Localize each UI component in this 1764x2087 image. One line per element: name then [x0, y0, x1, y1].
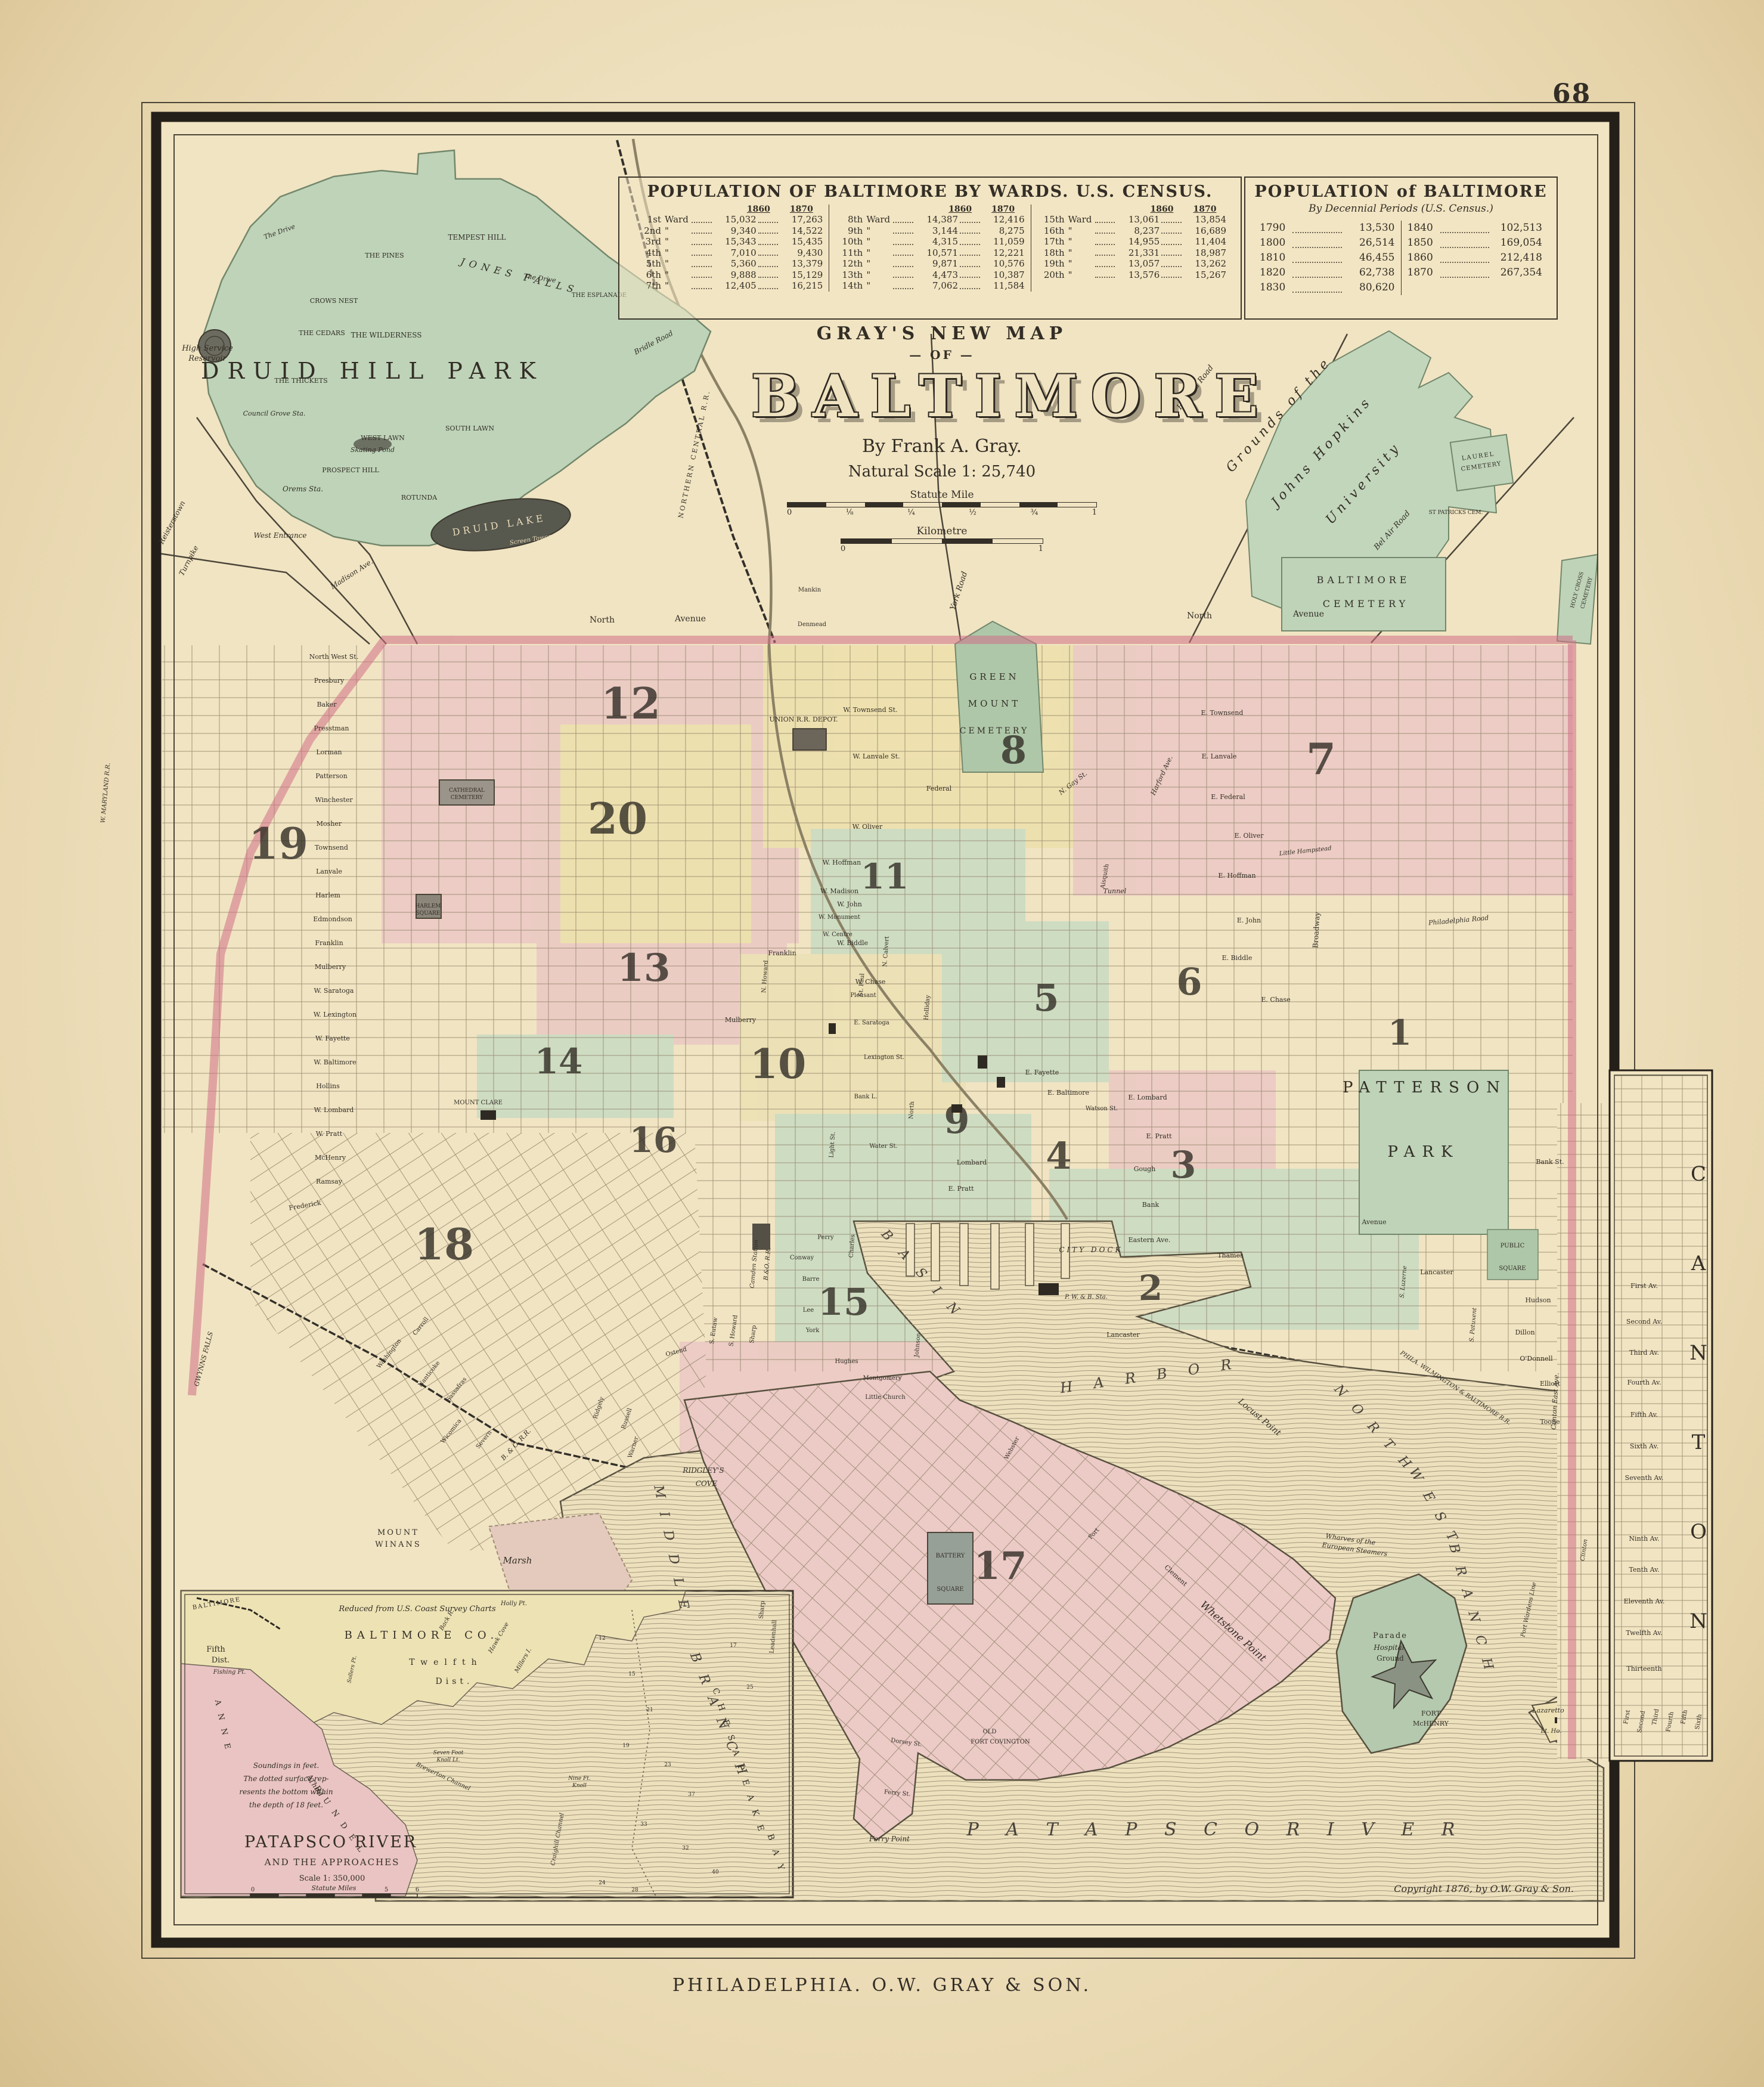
map-label: Bank St. [1536, 1158, 1564, 1166]
inset-tick: 5 [385, 1887, 388, 1893]
ward-8-number: 8 [1000, 728, 1027, 773]
map-label: WINANS [375, 1540, 421, 1549]
decennial-population-table: POPULATION of BALTIMORE By Decennial Per… [1244, 177, 1558, 320]
map-label: E. Fayette [1025, 1069, 1059, 1076]
ward-table-row: 1stWard15,03217,263 [634, 214, 823, 225]
map-label: High Service [181, 344, 233, 353]
map-label: MOUNT [377, 1528, 419, 1537]
decennial-row: 1860212,418 [1408, 250, 1543, 265]
ward-table-title: POPULATION OF BALTIMORE BY WARDS. U.S. C… [628, 182, 1232, 201]
publisher-imprint: PHILADELPHIA. O.W. GRAY & SON. [0, 1975, 1764, 1996]
map-label: Denmead [798, 621, 827, 628]
inset-sounding: 40 [712, 1869, 719, 1875]
ward-1-number: 1 [1388, 1012, 1412, 1053]
map-label: E. Biddle [1222, 954, 1253, 962]
map-label: Winchester [315, 796, 353, 804]
map-label: Marsh [503, 1555, 532, 1566]
map-label: BALTIMORE [1317, 574, 1410, 586]
map-label: DRUID HILL PARK [201, 358, 544, 384]
ward-3-number: 3 [1170, 1143, 1196, 1187]
ward-16-number: 16 [630, 1120, 678, 1160]
mile-tick: ⅛ [846, 508, 854, 517]
map-label: W. Pratt [316, 1130, 343, 1138]
inset-label: Dist. [436, 1677, 473, 1686]
map-label: Little Church [865, 1394, 906, 1401]
map-label: OLD [983, 1729, 997, 1735]
map-label: MOUNT CLARE [454, 1100, 503, 1106]
ward-20-number: 20 [588, 793, 647, 844]
map-label: Ninth Av. [1629, 1535, 1659, 1543]
map-label: Thirteenth [1626, 1665, 1661, 1673]
map-label: E. Hoffman [1218, 872, 1255, 880]
map-label: Perry [817, 1234, 834, 1241]
map-label: Eleventh Av. [1624, 1597, 1665, 1605]
map-label: CITY DOCK [1059, 1246, 1123, 1254]
map-label: COVE [696, 1479, 717, 1488]
map-label: W. MARYLAND R.R. [100, 763, 112, 823]
page-number: 68 [1552, 79, 1591, 109]
inset-sounding: 23 [664, 1762, 671, 1768]
map-label: WEST LAWN [361, 434, 405, 442]
map-label: McHENRY [1413, 1720, 1449, 1727]
map-label: Ramsay [316, 1178, 343, 1185]
inset-sounding: 25 [746, 1685, 754, 1690]
map-label: Council Grove Sta. [243, 410, 306, 417]
map-label: Lorman [316, 748, 342, 756]
ward-table-groups: 186018701stWard15,03217,2632nd"9,34014,5… [628, 205, 1232, 292]
map-label: McHenry [315, 1154, 346, 1162]
map-label: Mulberry [725, 1016, 757, 1024]
map-label: E. Lombard [1128, 1094, 1167, 1101]
map-label: York [805, 1327, 820, 1334]
ward-10-number: 10 [750, 1041, 807, 1088]
decennial-row: 180026,514 [1260, 236, 1395, 250]
map-label: N [1689, 1341, 1707, 1365]
map-label: E. Townsend [1201, 709, 1244, 717]
inset-sounding: 37 [688, 1792, 695, 1798]
map-label: GREEN [969, 671, 1019, 682]
map-title-main: BALTIMORE [751, 368, 1133, 425]
map-title-kicker: GRAY'S NEW MAP [751, 323, 1133, 344]
map-label: Mankin [798, 587, 821, 593]
ward-table-row: 2nd"9,34014,522 [634, 225, 823, 237]
inset-title: AND THE APPROACHES [264, 1857, 400, 1868]
map-label: W. Townsend St. [843, 706, 897, 714]
map-label: MOUNT [968, 698, 1021, 709]
map-label: Avenue [1292, 609, 1324, 619]
ward-table-row: 3rd"15,34315,435 [634, 236, 823, 247]
map-label: P. W. & B. Sta. [1064, 1294, 1108, 1300]
map-label: ROTUNDA [401, 494, 438, 501]
map-label: Water St. [869, 1143, 897, 1150]
map-label: Lazaretto [1532, 1707, 1564, 1714]
inset-title: Statute Miles [312, 1884, 356, 1892]
ward-11-number: 11 [861, 856, 909, 897]
inset-label: Knoll Lt. [436, 1757, 460, 1763]
map-label: W. Lexington [314, 1011, 356, 1018]
ward-table-row: 11th"10,57112,221 [835, 247, 1024, 259]
map-label: North [590, 615, 615, 625]
ward-5-number: 5 [1033, 976, 1059, 1020]
kilometre-label: Kilometre [841, 525, 1043, 537]
ward-14-number: 14 [535, 1041, 583, 1082]
ward-table-row: 13th"4,47310,387 [835, 270, 1024, 281]
inset-note: Soundings in feet. [253, 1761, 319, 1770]
map-label: W. Madison [820, 887, 858, 895]
map-label: Hollins [316, 1082, 340, 1090]
map-label: E. Lanvale [1202, 753, 1237, 760]
map-label: FORT COVINGTON [971, 1739, 1030, 1745]
map-label: Presbury [314, 677, 345, 685]
public-square [1487, 1230, 1538, 1280]
map-label: RIDGLEY'S [682, 1466, 724, 1475]
decennial-row: 1840102,513 [1408, 221, 1543, 236]
map-label: PROSPECT HILL [322, 466, 379, 474]
map-label: THE THICKETS [274, 377, 327, 385]
map-label: N [1689, 1609, 1707, 1633]
ward-table-group: 186018701stWard15,03217,2632nd"9,34014,5… [628, 205, 829, 292]
mile-tick: ¾ [1030, 508, 1038, 517]
map-label: Barre [802, 1276, 820, 1283]
map-label: Lanvale [316, 868, 342, 875]
ward-table-row: 8thWard14,38712,416 [835, 214, 1024, 225]
ward-table-row: 19th"13,05713,262 [1037, 258, 1226, 270]
map-label: Edmondson [313, 915, 352, 923]
map-label: Lt. Ho. [1540, 1728, 1562, 1735]
map-label: North West St. [309, 653, 358, 661]
map-label: SQUARE [1499, 1265, 1526, 1272]
ward-table-row: 15thWard13,06113,854 [1037, 214, 1226, 225]
inset-label: Dist. [212, 1656, 230, 1665]
map-label: West Entrance [253, 531, 306, 540]
inset-sounding: 33 [640, 1822, 647, 1828]
decennial-row: 1850169,054 [1408, 236, 1543, 250]
statute-mile-label: Statute Mile [787, 489, 1097, 501]
map-label: Eastern Ave. [1129, 1236, 1171, 1244]
inset-label: Fifth [206, 1645, 225, 1654]
map-label: W. Biddle [837, 939, 868, 947]
map-label: Fourth Av. [1627, 1379, 1661, 1386]
map-label: Hudson [1525, 1296, 1551, 1304]
map-label: Avenue [1362, 1218, 1387, 1226]
inset-note: resents the bottom within [239, 1788, 333, 1796]
ward-6-number: 6 [1176, 960, 1202, 1004]
ward-table-row: 5th"5,36013,379 [634, 258, 823, 270]
map-label: THE PINES [365, 252, 404, 259]
map-label: E. Federal [1211, 793, 1245, 801]
map-label: Harlem [315, 891, 340, 899]
map-label: Reservoir [188, 354, 227, 363]
ward-table-row: 7th"12,40516,215 [634, 280, 823, 292]
inset-sounding: 17 [730, 1643, 737, 1649]
inset-title: Scale 1: 350,000 [299, 1874, 365, 1883]
decennial-row: 182062,738 [1260, 265, 1395, 280]
ward-12-number: 12 [601, 678, 661, 729]
map-label: E. Pratt [948, 1185, 974, 1193]
map-label: Mosher [317, 820, 342, 828]
map-label: Bank [1142, 1201, 1160, 1209]
map-label: CEMETERY [1323, 598, 1409, 609]
inset-label: BALTIMORE CO. [345, 1629, 499, 1642]
inset-label: Seven Foot [433, 1750, 464, 1756]
inset-label: Nine Ft. [568, 1776, 591, 1782]
map-label: Third Av. [1629, 1349, 1659, 1357]
ward-table-group: 186018708thWard14,38712,4169th"3,1448,27… [829, 205, 1030, 292]
inset-label: Fishing Pt. [213, 1669, 246, 1676]
map-label: Seventh Av. [1625, 1474, 1664, 1482]
map-label: T [1692, 1430, 1706, 1454]
map-label: Baker [317, 701, 337, 708]
map-label: E. Chase [1261, 996, 1290, 1004]
map-label: P A T A P S C O R I V E R [966, 1819, 1466, 1840]
map-label: W. John [837, 900, 862, 908]
inset-sounding: 32 [682, 1846, 689, 1851]
ward-table-row: 4th"7,0109,430 [634, 247, 823, 259]
decennial-column: 179013,530180026,514181046,455182062,738… [1254, 221, 1401, 295]
ward-15-number: 15 [818, 1280, 869, 1324]
decennial-row: 183080,620 [1260, 280, 1395, 295]
map-label: E. Pratt [1146, 1132, 1172, 1140]
ward-table-row: 6th"9,88815,129 [634, 270, 823, 281]
map-label: E. John [1237, 916, 1261, 924]
map-label: TEMPEST HILL [448, 233, 506, 241]
inset-label: Twelfth [409, 1658, 482, 1667]
ward-7-number: 7 [1306, 733, 1336, 784]
decennial-row: 1870267,354 [1408, 265, 1543, 280]
map-label: C [1691, 1162, 1706, 1186]
inset-sounding: 12 [599, 1636, 605, 1642]
map-label: PUBLIC [1501, 1243, 1525, 1249]
map-label: HARLEM [416, 903, 441, 909]
ward-19-number: 19 [249, 818, 308, 869]
map-label: Tenth Av. [1629, 1566, 1660, 1574]
map-title-of: — OF — [751, 348, 1133, 362]
map-label: PATTERSON [1343, 1079, 1507, 1097]
map-label: Skating Pond [351, 446, 395, 454]
decennial-table-subtitle: By Decennial Periods (U.S. Census.) [1254, 203, 1548, 215]
map-label: W. Oliver [852, 823, 883, 831]
ward-18-number: 18 [414, 1219, 474, 1269]
decennial-row: 181046,455 [1260, 250, 1395, 265]
ward-4-number: 4 [1046, 1134, 1071, 1178]
ward-table-header: 18601870 [835, 205, 1024, 214]
inset-tick: 0 [251, 1887, 255, 1893]
inset-note: The dotted surface rep- [243, 1775, 328, 1783]
ward-table-group: 1860187015thWard13,06113,85416th"8,23716… [1031, 205, 1232, 292]
map-label: A [1691, 1252, 1706, 1275]
map-label: Presstman [314, 724, 349, 732]
map-label: Lexington St. [864, 1054, 904, 1061]
map-label: Ferry Point [869, 1835, 910, 1843]
map-label: Hughes [835, 1358, 858, 1365]
inset-sounding: 28 [631, 1887, 638, 1893]
map-label: Mulberry [315, 963, 346, 971]
map-label: CEMETERY [451, 795, 483, 801]
inset-label: Knoll [572, 1783, 587, 1789]
map-label: Ground [1377, 1654, 1404, 1662]
kilometre-scalebar: Kilometre 0 1 [841, 525, 1043, 553]
ward-table-row: 20th"13,57615,267 [1037, 270, 1226, 281]
statute-mile-scalebar: Statute Mile 0 ⅛ ¼ ½ ¾ 1 [787, 489, 1097, 517]
map-label: THE CEDARS [299, 329, 345, 337]
map-label: Gough [1134, 1165, 1156, 1173]
map-label: UNION R.R. DEPOT. [770, 716, 838, 723]
map-title-byline: By Frank A. Gray. [751, 436, 1133, 457]
map-label: Patterson [315, 772, 347, 780]
map-label: E. Oliver [1234, 832, 1264, 840]
map-label: Sixth Av. [1630, 1442, 1658, 1450]
inset-note: Reduced from U.S. Coast Survey Charts [338, 1605, 496, 1614]
map-label: Federal [926, 785, 952, 792]
decennial-table-title: POPULATION of BALTIMORE [1254, 182, 1548, 201]
map-label: W. Hoffman [823, 859, 861, 866]
ward-table-row: 18th"21,33118,987 [1037, 247, 1226, 259]
map-label: Avenue [674, 614, 706, 624]
ward-table-row: 9th"3,1448,275 [835, 225, 1024, 237]
map-label: ST PATRICKS CEM. [1429, 510, 1483, 516]
mile-tick: ½ [969, 508, 976, 517]
decennial-column: 1840102,5131850169,0541860212,4181870267… [1401, 221, 1549, 295]
inset-tick: 6 [416, 1887, 419, 1893]
map-label: Lombard [957, 1159, 987, 1166]
map-label: Montgomery [863, 1375, 902, 1382]
map-label: Conway [790, 1255, 814, 1261]
decennial-table-columns: 179013,530180026,514181046,455182062,738… [1254, 221, 1548, 295]
mile-tick: 0 [787, 508, 792, 517]
map-label: O [1690, 1520, 1707, 1544]
map-label: Watson St. [1086, 1106, 1118, 1112]
mile-tick: ¼ [907, 508, 915, 517]
decennial-row: 179013,530 [1260, 221, 1395, 236]
map-label: Tunnel [1103, 887, 1127, 895]
map-label: E. Saratoga [854, 1020, 889, 1026]
map-label: W. Baltimore [314, 1058, 356, 1066]
map-label: Dillon [1515, 1329, 1534, 1336]
map-label: Lancaster [1106, 1331, 1140, 1339]
map-label: E. Baltimore [1047, 1089, 1089, 1097]
map-sheet: DRUID HILL PARKDRUID LAKEScreen TowerTEM… [0, 0, 1764, 2087]
ward-table-row: 14th"7,06211,584 [835, 280, 1024, 292]
map-label: CATHEDRAL [449, 788, 485, 794]
map-label: Hospital [1373, 1643, 1404, 1652]
map-label: PARK [1388, 1143, 1460, 1161]
map-label: W. Saratoga [314, 987, 354, 995]
map-label: Franklin [315, 939, 343, 947]
inset-note: the depth of 18 feet. [249, 1801, 323, 1809]
map-label: O'Donnell [1520, 1355, 1553, 1363]
mile-tick: 1 [1092, 508, 1097, 517]
map-label: Bank L. [854, 1094, 878, 1100]
map-label: Lancaster [1420, 1268, 1453, 1276]
map-label: Orems Sta. [283, 485, 323, 493]
map-label: SQUARE [416, 911, 441, 916]
inset-sounding: 21 [646, 1707, 653, 1713]
inset-sounding: 15 [628, 1671, 635, 1677]
map-label: North [1187, 611, 1212, 621]
map-title-block: GRAY'S NEW MAP — OF — BALTIMORE By Frank… [751, 323, 1133, 553]
ward-table-row: 16th"8,23716,689 [1037, 225, 1226, 237]
inset-sounding: 24 [599, 1880, 606, 1886]
inset-label: Holly Pt. [500, 1600, 527, 1607]
inset-sounding: 19 [622, 1743, 630, 1749]
copyright-notice: Copyright 1876, by O.W. Gray & Son. [1276, 1883, 1574, 1894]
map-label: W. Fayette [315, 1035, 350, 1042]
ward-table-row: 17th"14,95511,404 [1037, 236, 1226, 247]
map-label: Fifth Av. [1630, 1411, 1658, 1419]
map-label: Townsend [315, 844, 348, 851]
ward-9-number: 9 [944, 1098, 969, 1142]
map-label: Second Av. [1626, 1318, 1662, 1326]
inset-title: PATAPSCO RIVER [244, 1833, 417, 1851]
map-label: W. Lombard [314, 1106, 354, 1114]
map-label: BATTERY [936, 1553, 965, 1559]
map-label: Twelfth Av. [1626, 1629, 1662, 1637]
km-tick: 1 [1038, 544, 1043, 553]
ward-table-header: 18601870 [1037, 205, 1226, 214]
map-label: SOUTH LAWN [445, 425, 494, 432]
map-label: North [908, 1101, 916, 1119]
map-label: THE WILDERNESS [351, 331, 422, 339]
map-natural-scale: Natural Scale 1: 25,740 [751, 463, 1133, 481]
map-label: W. Monument [819, 914, 860, 921]
ward-table-row: 10th"4,31511,059 [835, 236, 1024, 247]
map-label: W. Centre [823, 931, 852, 938]
ward-table-row: 12th"9,87110,576 [835, 258, 1024, 270]
map-label: CROWS NEST [310, 297, 358, 305]
map-label: Thames [1217, 1252, 1244, 1259]
km-tick: 0 [841, 544, 845, 553]
ward-2-number: 2 [1139, 1268, 1162, 1308]
map-label: First Av. [1630, 1282, 1658, 1290]
ward-13-number: 13 [617, 946, 670, 990]
map-label: W. Lanvale St. [852, 753, 900, 760]
map-label: Lee [803, 1307, 814, 1314]
ward-population-table: POPULATION OF BALTIMORE BY WARDS. U.S. C… [618, 177, 1242, 320]
ward-17-number: 17 [974, 1544, 1027, 1589]
map-label: FORT [1421, 1710, 1441, 1717]
map-label: Franklin [768, 949, 796, 957]
ward-table-header: 18601870 [634, 205, 823, 214]
map-label: Parade [1373, 1631, 1408, 1640]
map-label: SQUARE [937, 1586, 963, 1593]
